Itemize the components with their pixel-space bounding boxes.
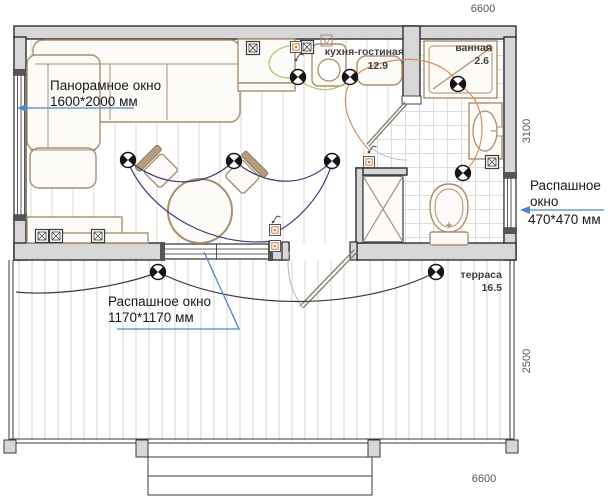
dimension-bottom: 6600 xyxy=(472,473,496,485)
ceiling-light-icon xyxy=(291,70,306,85)
power-outlet-icon xyxy=(270,225,281,236)
panoramic-window xyxy=(13,69,27,221)
room-area-terrace: 16.5 xyxy=(482,282,503,294)
power-outlet-icon xyxy=(291,42,302,53)
outlet-icon xyxy=(301,41,314,54)
annotation-panoramic-line1: Панорамное окно xyxy=(50,78,161,93)
annotation-casement-large-line2: 1170*1170 мм xyxy=(108,310,194,325)
room-label-kitchen-living: кухня-гостиная xyxy=(325,46,404,58)
outlet-icon xyxy=(92,230,105,243)
ceiling-light-icon xyxy=(151,265,166,280)
wall-bottom-left xyxy=(14,243,163,260)
annotation-casement-small-line2: окно xyxy=(530,194,558,209)
room-label-terrace: терраса xyxy=(461,269,503,281)
outlet-icon xyxy=(247,42,260,55)
bathroom-sink xyxy=(469,103,503,159)
toilet xyxy=(430,184,468,245)
power-outlet-icon xyxy=(364,157,375,168)
dimension-side-terrace: 2500 xyxy=(521,349,533,373)
annotation-casement-small-line3: 470*470 мм xyxy=(528,212,601,227)
terrace-edge-right xyxy=(510,260,514,441)
right-casement-window xyxy=(503,172,517,234)
outlet-icon xyxy=(486,156,499,169)
ceiling-light-icon xyxy=(227,154,242,169)
terrace-step xyxy=(148,457,372,476)
wall-niche-left xyxy=(356,168,363,243)
wall-top xyxy=(14,26,516,39)
terrace-post xyxy=(4,440,16,453)
floor-plan-svg: 6600 6600 3100 2500 кухня-гостиная 12.9 … xyxy=(0,0,608,502)
annotation-panoramic-line2: 1600*2000 мм xyxy=(50,94,138,109)
dimension-side-house: 3100 xyxy=(521,119,533,143)
terrace-post xyxy=(136,440,148,457)
room-area-bathroom: 2.6 xyxy=(474,55,489,67)
annotation-casement-small-line1: Распашное xyxy=(530,178,601,193)
terrace-edge-left xyxy=(9,260,13,441)
ceiling-light-icon xyxy=(429,265,444,280)
power-outlet-icon xyxy=(270,241,281,252)
dining-table xyxy=(168,179,232,243)
annotation-casement-large-line1: Распашное окно xyxy=(108,294,211,309)
ceiling-light-icon xyxy=(451,77,466,92)
wall-interior-bathroom xyxy=(403,26,420,103)
terrace-step xyxy=(148,476,372,495)
ceiling-light-icon xyxy=(121,153,136,168)
storage-cabinet xyxy=(363,176,403,242)
dimension-top: 6600 xyxy=(471,3,495,15)
floor-terrace-planks xyxy=(13,260,510,441)
outlet-icon xyxy=(50,230,63,243)
room-label-bathroom: ванная xyxy=(455,42,492,54)
ceiling-light-icon xyxy=(325,154,340,169)
terrace-post xyxy=(368,440,380,457)
room-area-kitchen-living: 12.9 xyxy=(368,60,389,72)
ceiling-light-icon xyxy=(343,70,358,85)
outlet-icon xyxy=(36,230,49,243)
wall-right-upper xyxy=(504,37,516,178)
terrace-post xyxy=(506,440,518,453)
bottom-casement-window xyxy=(160,242,273,261)
floor-plan-screenshot: 6600 6600 3100 2500 кухня-гостиная 12.9 … xyxy=(0,0,608,502)
ceiling-light-icon xyxy=(456,166,471,181)
